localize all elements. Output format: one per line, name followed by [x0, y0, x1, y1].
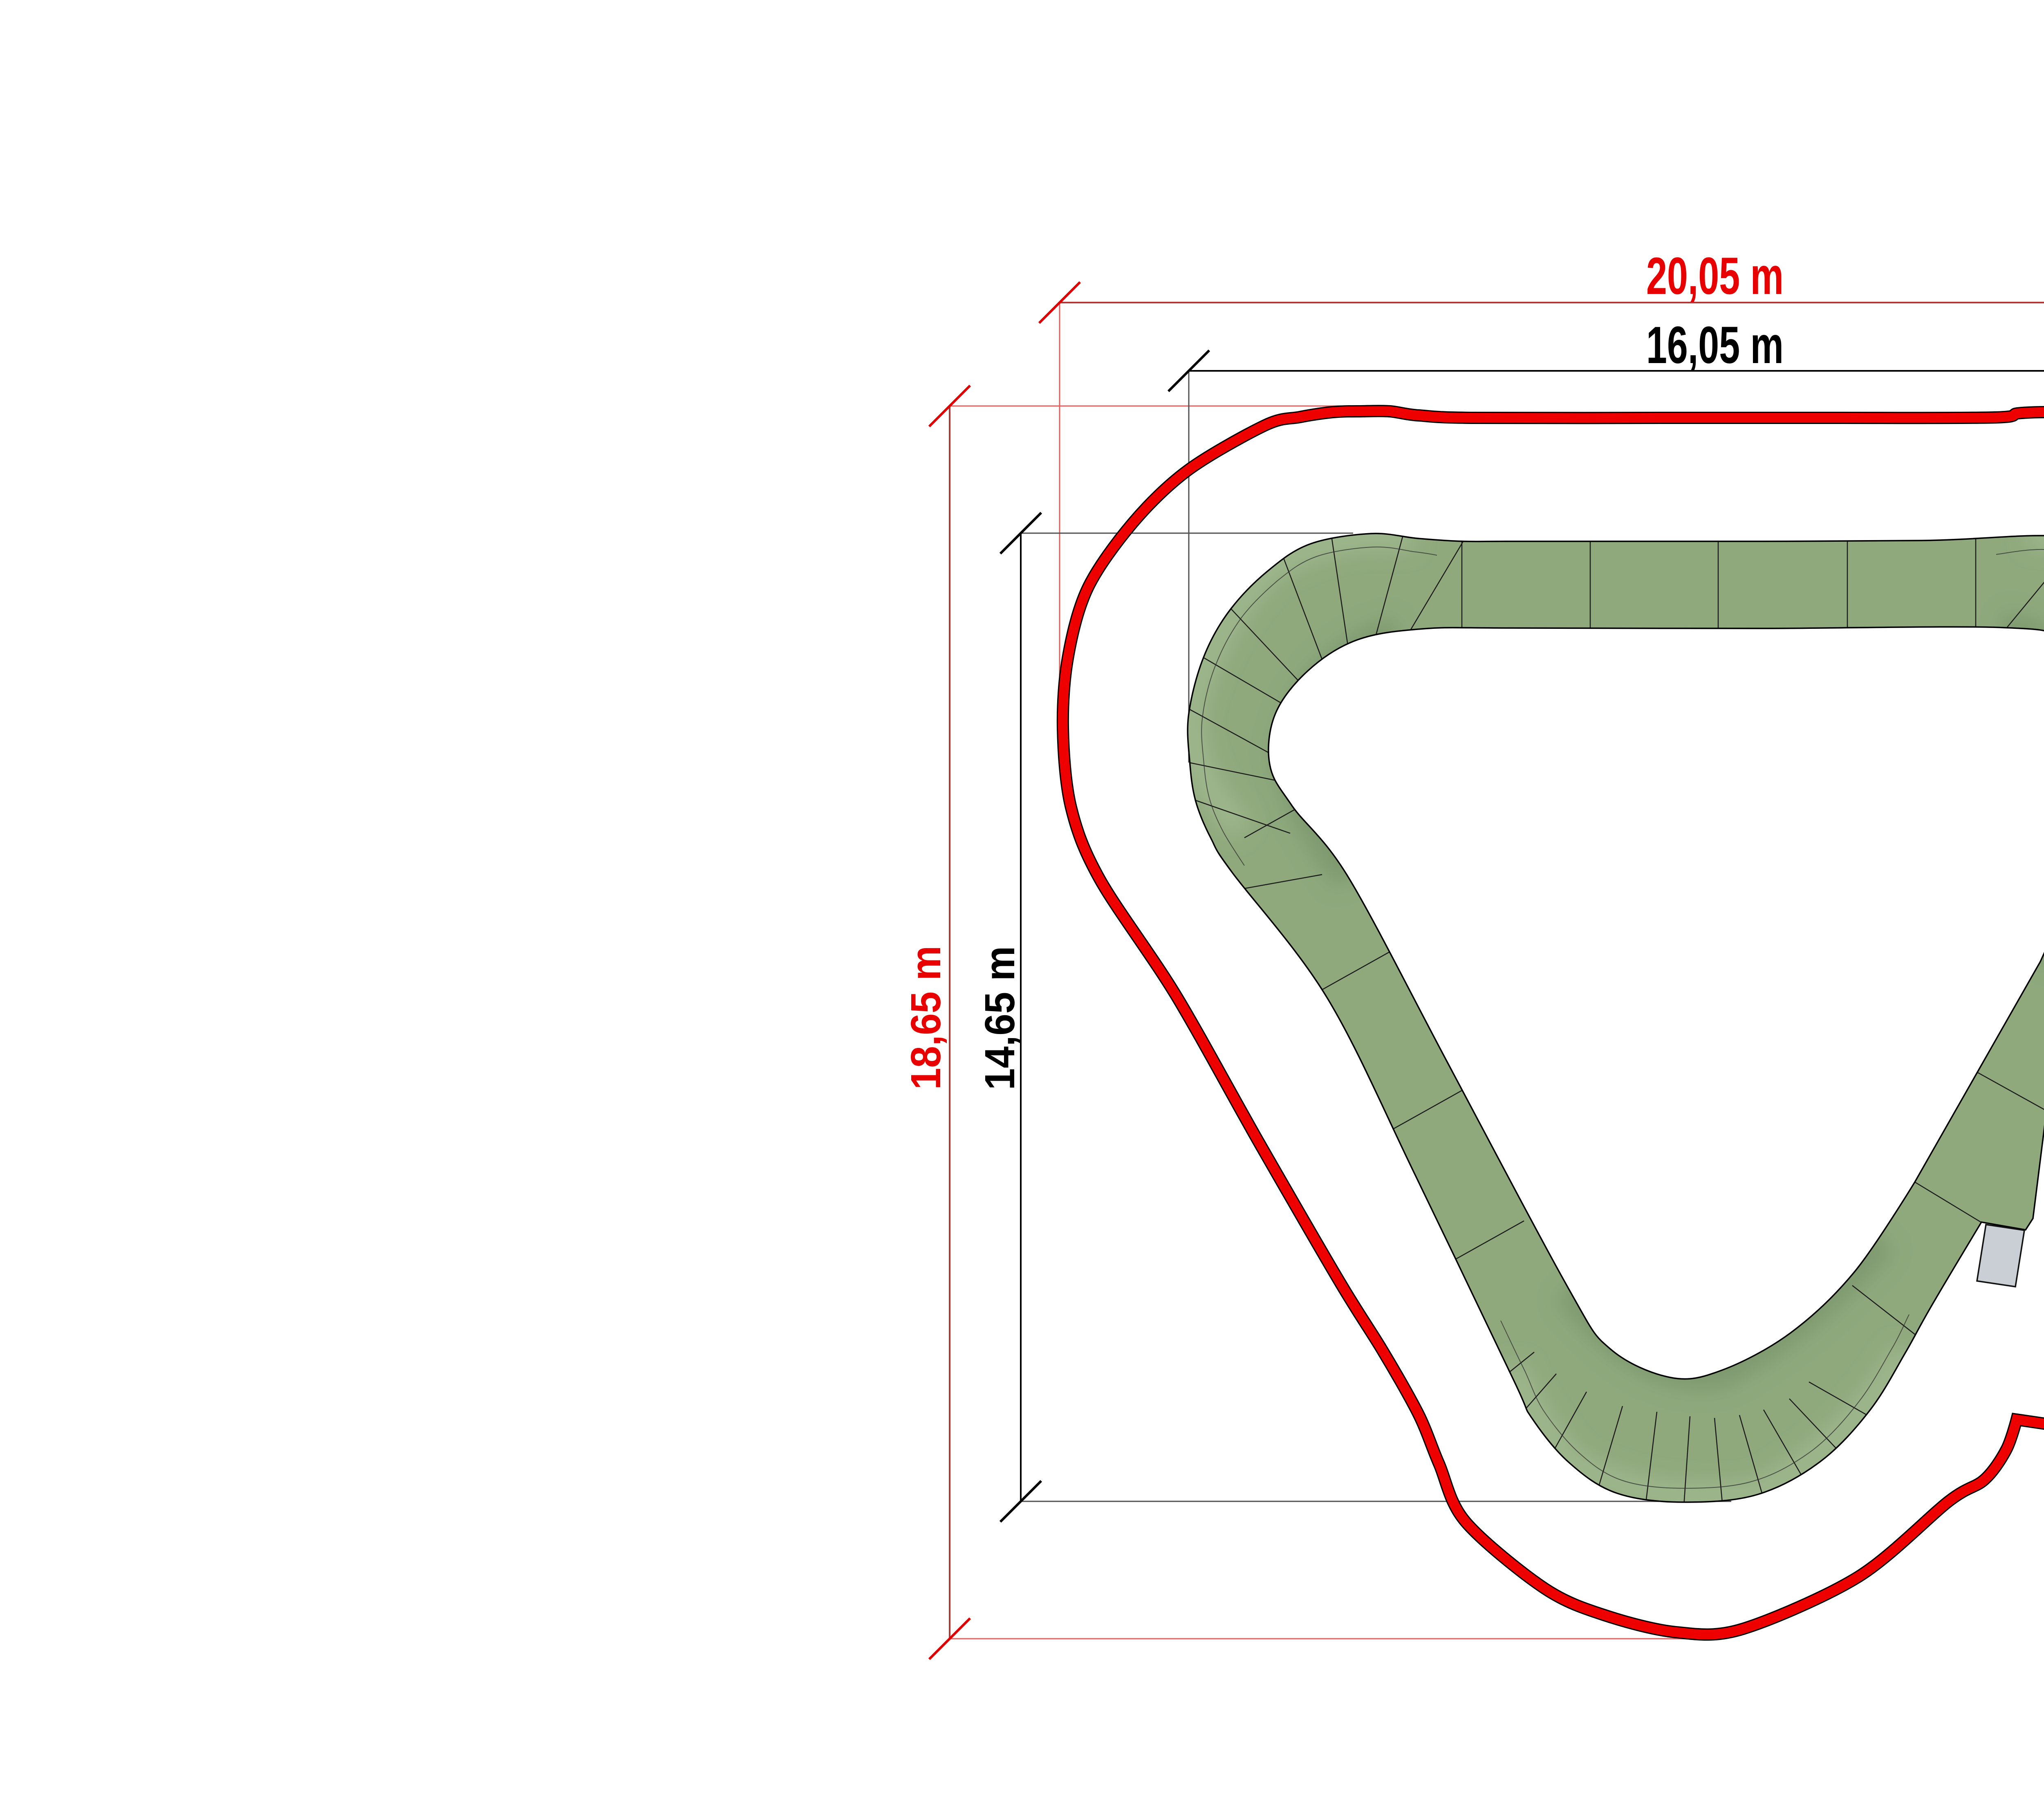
svg-text:18,65 m: 18,65 m — [902, 946, 949, 1090]
svg-text:20,05 m: 20,05 m — [1646, 247, 1784, 305]
svg-text:16,05 m: 16,05 m — [1646, 316, 1784, 375]
svg-text:14,65 m: 14,65 m — [976, 946, 1023, 1090]
